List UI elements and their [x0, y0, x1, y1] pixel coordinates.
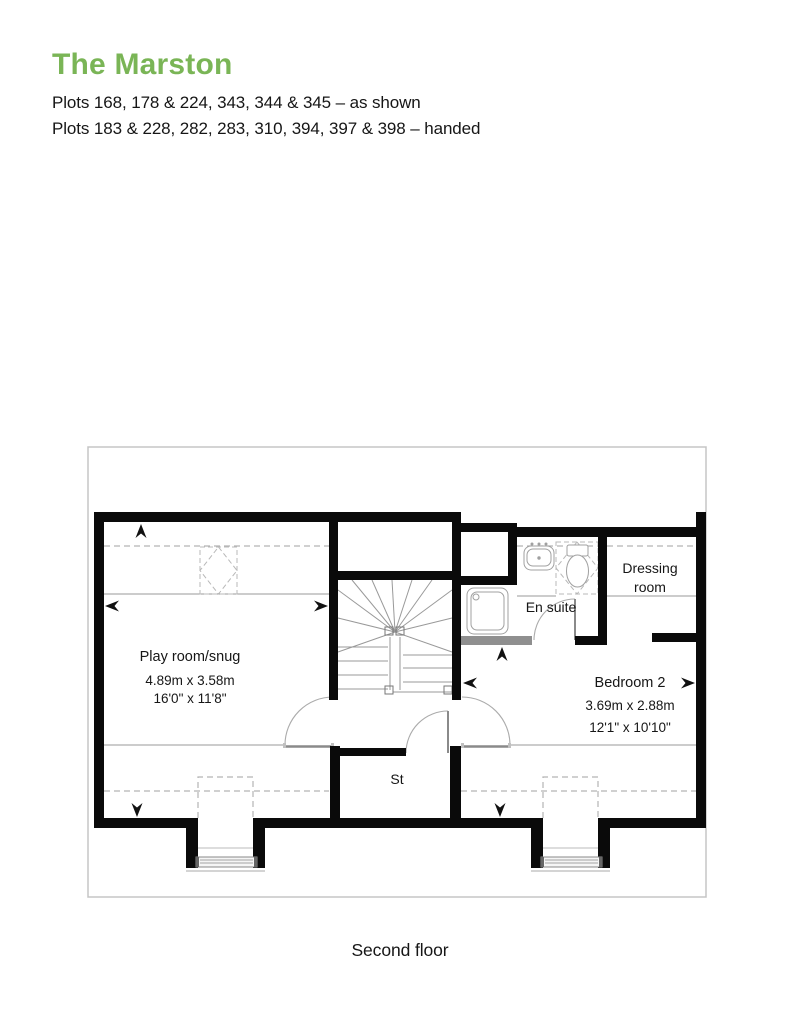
dimension-arrow-up	[136, 524, 147, 538]
ensuite-fixtures	[467, 543, 589, 634]
room-label-bedroom2: Bedroom 2	[595, 675, 666, 691]
floor-plan: Play room/snug 4.89m x 3.58m 16'0" x 11'…	[0, 0, 800, 1036]
wall-store-left	[330, 746, 340, 818]
winder-treads	[338, 580, 452, 652]
door-store	[406, 711, 448, 753]
dimension-arrow-right	[314, 601, 328, 612]
staircase	[338, 580, 452, 694]
wall-bottom	[94, 818, 186, 828]
floor-caption: Second floor	[0, 940, 800, 961]
wall-dressing-bottom	[652, 633, 706, 642]
dormer-recess-dashed	[543, 777, 598, 818]
wall-store-top	[338, 748, 406, 756]
wall-bottom	[610, 818, 706, 828]
dormer-recess-dashed	[198, 777, 253, 818]
room-label-playroom: Play room/snug	[140, 649, 241, 665]
wall-top-left-section	[94, 512, 461, 522]
newel-posts	[385, 627, 452, 694]
room-dim-bedroom2-imperial: 12'1" x 10'10"	[589, 720, 671, 735]
dimension-arrow-left	[463, 678, 477, 689]
dimension-arrow-up	[497, 647, 508, 661]
dimension-arrow-left	[105, 601, 119, 612]
wall-flue-box-top	[452, 523, 517, 532]
wall-left	[94, 512, 104, 828]
room-label-dressing-line2: room	[634, 579, 666, 595]
wall-stair-void-bottom	[329, 571, 461, 580]
wall-top-right-section	[508, 527, 706, 537]
dimension-arrow-down	[495, 803, 506, 817]
stair-handrail	[390, 637, 400, 690]
skylight-playroom	[200, 547, 237, 594]
brochure-page: { "header": { "title": "The Marston", "p…	[0, 0, 800, 1036]
room-label-ensuite: En suite	[526, 599, 577, 615]
wash-basin	[524, 543, 554, 570]
wall-store-right	[450, 746, 461, 818]
wall-stair-right	[452, 512, 461, 700]
door-bedroom2	[462, 697, 510, 747]
straight-treads	[338, 647, 452, 692]
wall-low-shower	[461, 636, 532, 645]
wall-dressing-left	[598, 537, 607, 642]
doors	[283, 599, 575, 753]
wall-right	[696, 512, 706, 828]
wall-flue-box-right	[508, 523, 517, 585]
shower-tray	[467, 588, 508, 634]
door-playroom	[285, 697, 333, 747]
room-dim-playroom-metric: 4.89m x 3.58m	[145, 673, 234, 688]
room-label-store: St	[390, 771, 403, 787]
dormer-window	[541, 848, 602, 867]
dimension-arrow-right	[681, 678, 695, 689]
dormer-window	[196, 848, 257, 867]
room-dim-bedroom2-metric: 3.69m x 2.88m	[585, 698, 674, 713]
wall-stair-left	[329, 512, 338, 700]
wall-flue-box-bottom	[452, 576, 517, 585]
room-label-dressing-line1: Dressing	[622, 560, 677, 576]
room-dim-playroom-imperial: 16'0" x 11'8"	[153, 691, 226, 706]
wall-bottom	[265, 818, 531, 828]
toilet	[567, 545, 589, 587]
dimension-arrow-down	[132, 803, 143, 817]
